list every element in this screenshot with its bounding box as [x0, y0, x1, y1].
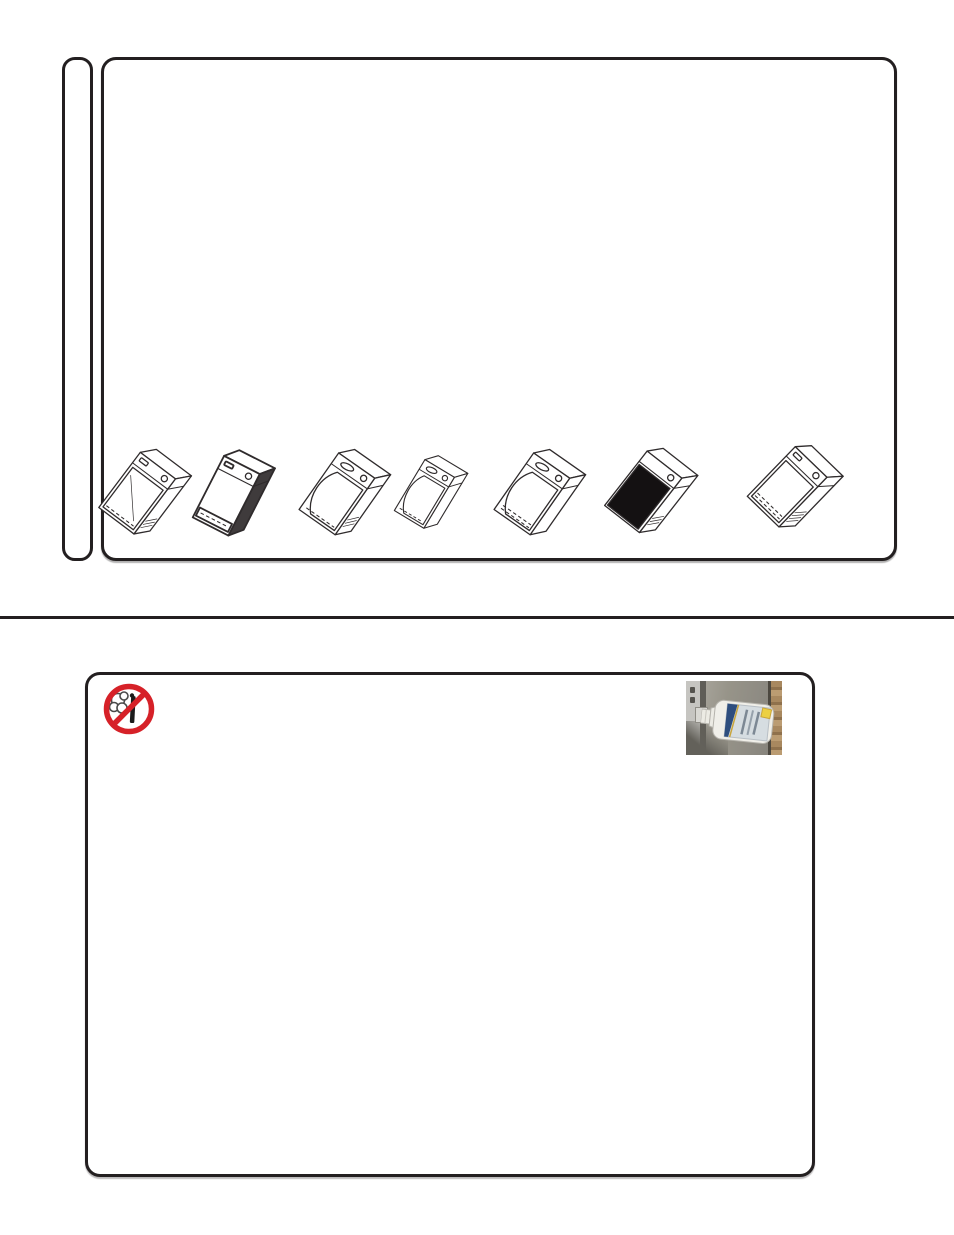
appliance-line-drawing-6: [613, 443, 713, 555]
appliance-line-drawing-2: [197, 443, 297, 555]
cleaner-bottle-photo: [686, 681, 782, 755]
photo-vent-slot: [690, 697, 695, 703]
section-divider: [0, 616, 954, 619]
cleaner-bottle: [699, 695, 779, 749]
cleaning-care-panel: [85, 672, 815, 1177]
appliance-line-drawing-4: [392, 442, 492, 554]
photo-vent-slot: [690, 687, 695, 693]
appliance-line-drawing-5: [502, 444, 602, 556]
no-steam-cleaning-icon: [103, 683, 155, 735]
manual-page: [0, 0, 954, 1235]
appliance-line-drawing-1: [107, 444, 207, 556]
blank-side-tab: [62, 57, 93, 561]
appliance-line-drawing-7: [756, 440, 856, 552]
